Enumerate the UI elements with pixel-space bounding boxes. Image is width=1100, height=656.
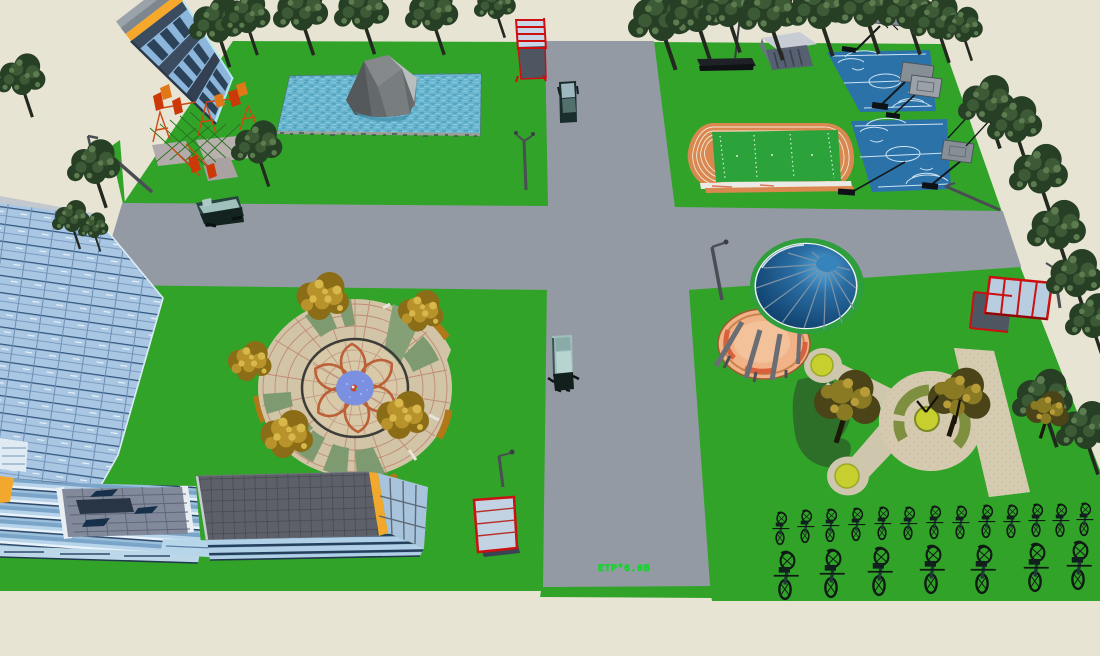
svg-text:ETP*6.0B: ETP*6.0B xyxy=(598,563,650,575)
